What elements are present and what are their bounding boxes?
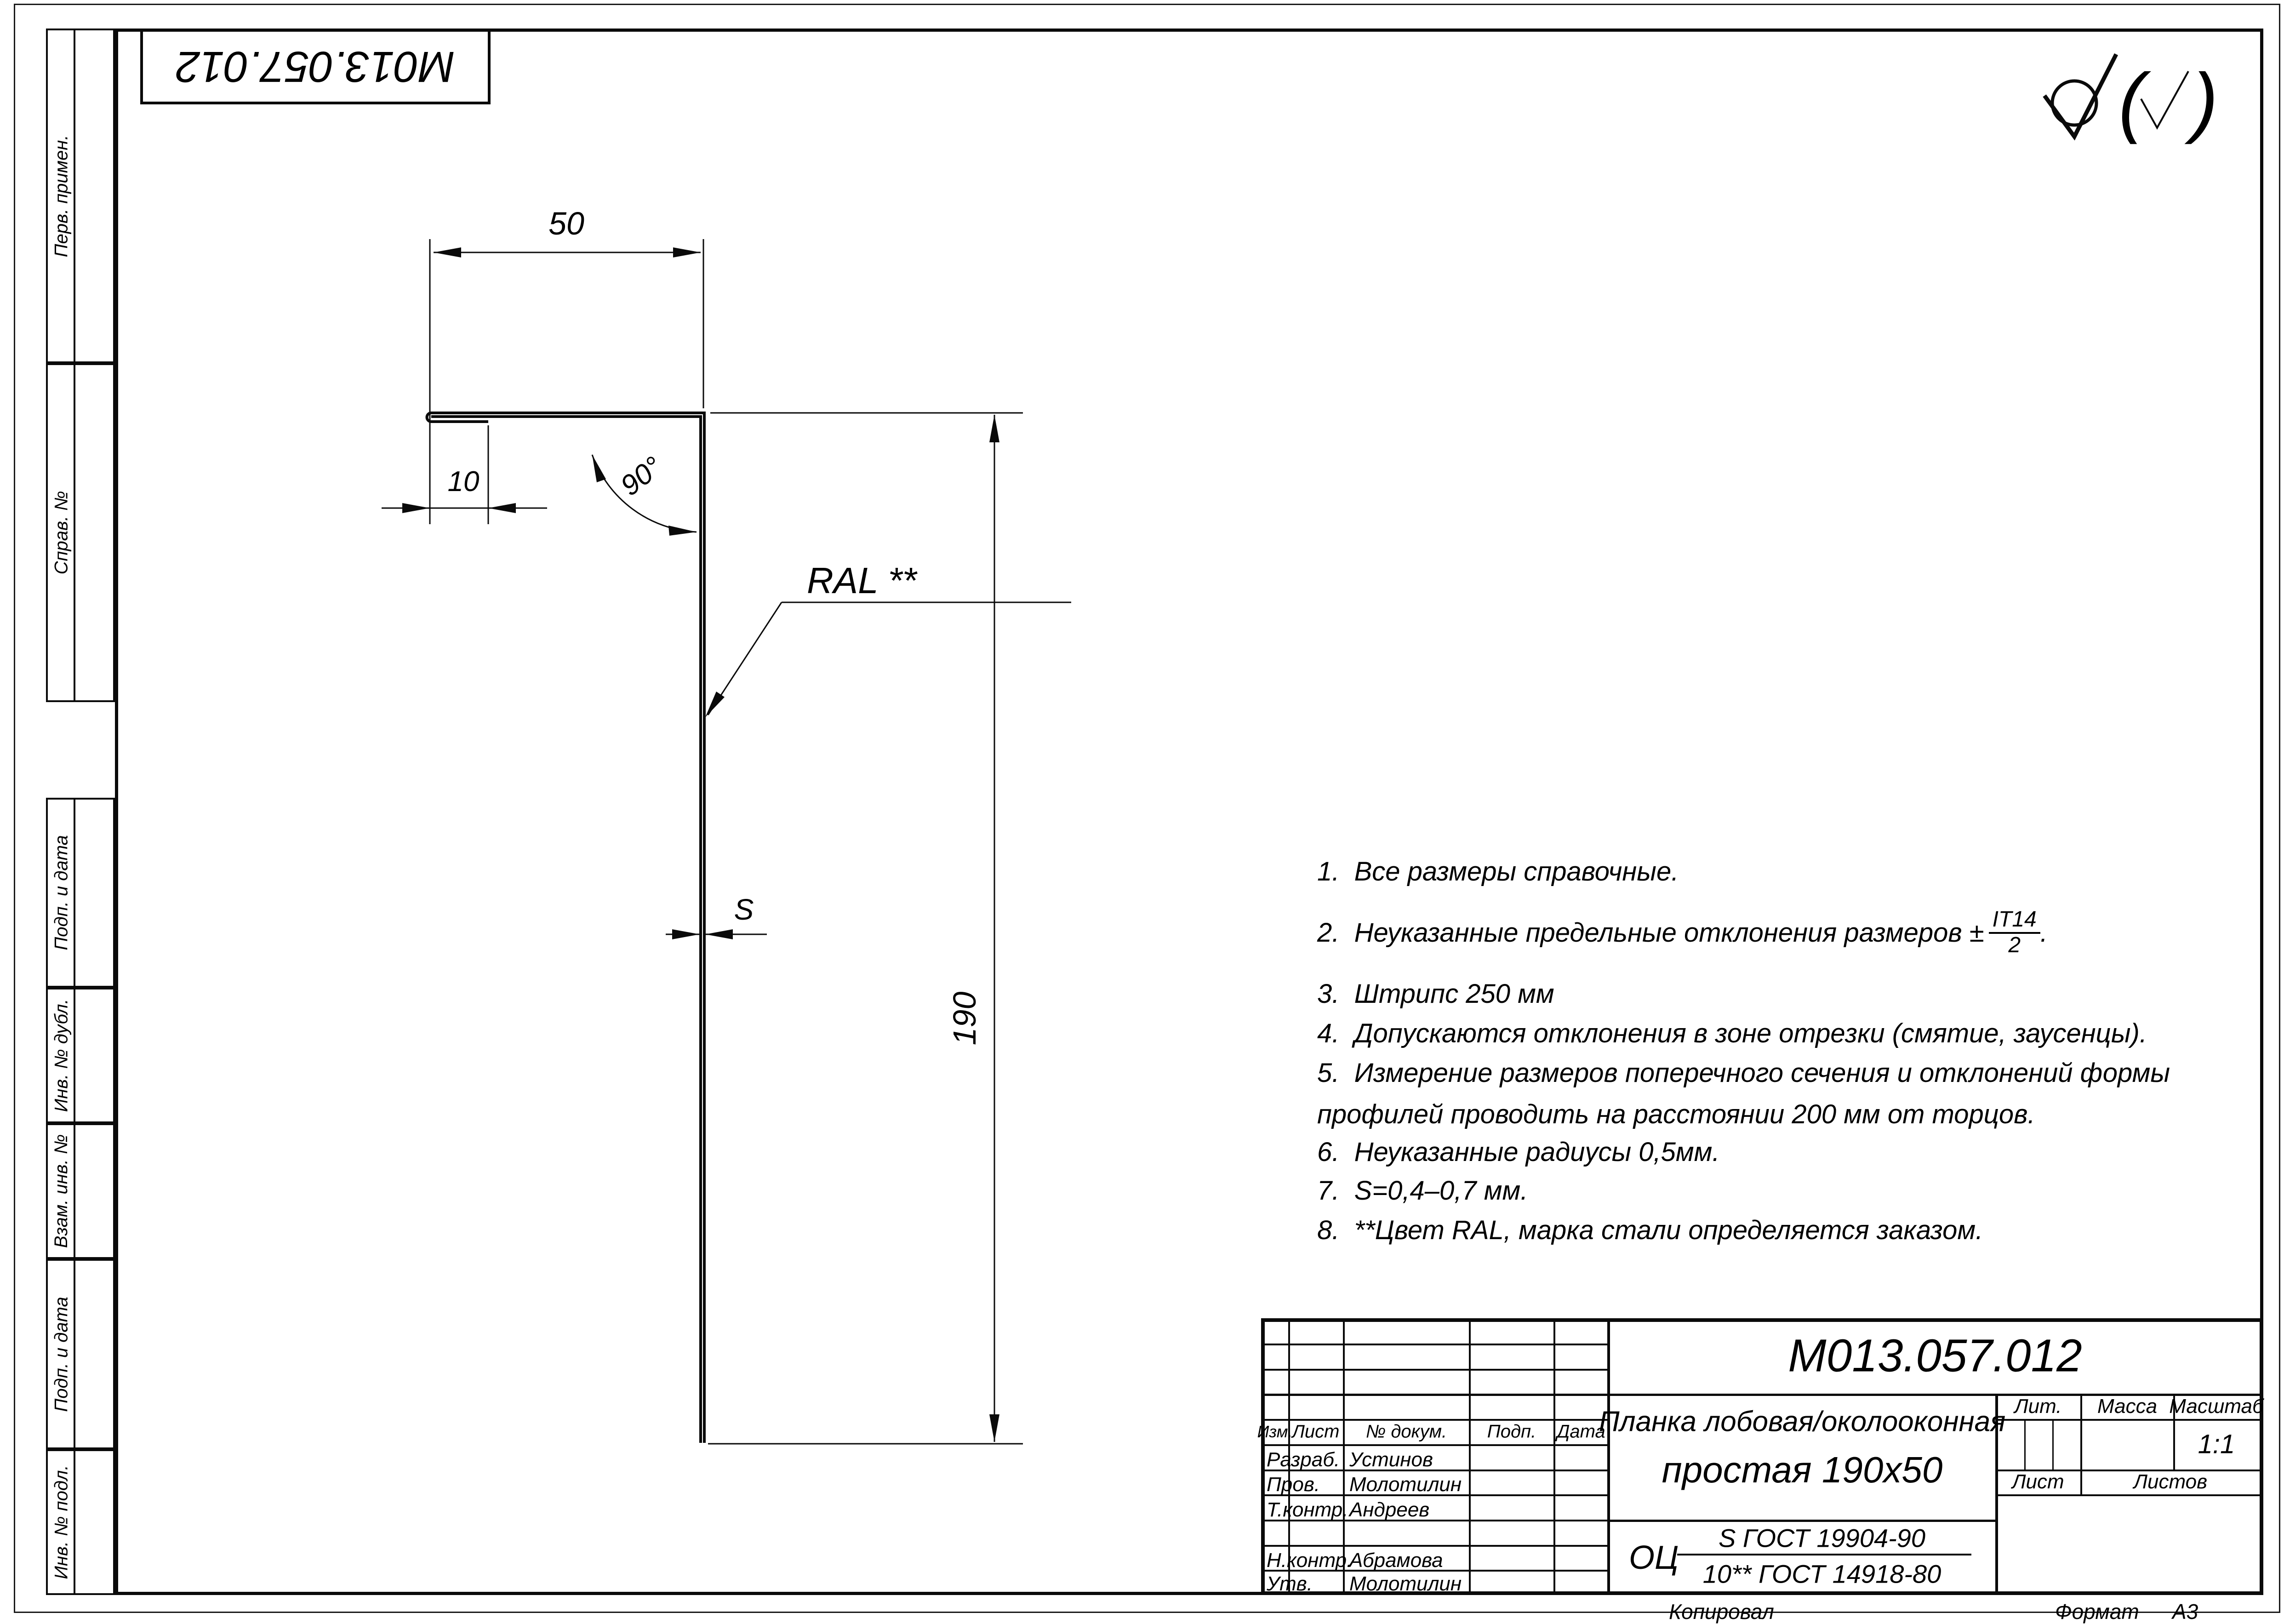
material-prefix: ОЦ xyxy=(1629,1539,1679,1577)
list-label: Лист xyxy=(2012,1470,2064,1493)
note-2: 2. Неуказанные предельные отклонения раз… xyxy=(1317,908,2048,957)
row-name: Абрамова xyxy=(1349,1549,1443,1572)
header-podp: Подп. xyxy=(1487,1422,1536,1442)
row-name: Устинов xyxy=(1349,1448,1433,1471)
extension-lines xyxy=(430,239,1023,1444)
listov-label: Листов xyxy=(2134,1470,2207,1493)
header-izm: Изм. xyxy=(1257,1422,1293,1441)
scale-label: Масштаб xyxy=(2169,1395,2264,1418)
dim-10-text: 10 xyxy=(448,466,480,497)
material-numerator: S ГОСТ 19904-90 xyxy=(1719,1523,1925,1553)
header-data: Дата xyxy=(1557,1422,1605,1442)
dim-angle-text: 90° xyxy=(615,451,668,502)
format-value: А3 xyxy=(2172,1599,2198,1624)
format-label: Формат xyxy=(2055,1599,2139,1624)
row-name: Молотилин xyxy=(1349,1573,1462,1595)
note-7: 7. S=0,4–0,7 мм. xyxy=(1317,1175,1528,1206)
dim-50-text: 50 xyxy=(548,206,584,241)
material-denominator: 10** ГОСТ 14918-80 xyxy=(1703,1559,1941,1589)
row-name: Молотилин xyxy=(1349,1473,1462,1496)
header-docnum: № докум. xyxy=(1366,1422,1447,1442)
title-block: М013.057.012 Планка лобовая/околооконная… xyxy=(1261,1318,2263,1595)
note-6: 6. Неуказанные радиусы 0,5мм. xyxy=(1317,1137,1720,1167)
lit-label: Лит. xyxy=(2014,1395,2061,1418)
small-check-icon xyxy=(2141,71,2188,128)
copied-label: Копировал xyxy=(1669,1599,1774,1624)
designation-text: М013.057.012 xyxy=(1788,1330,2082,1383)
note-5-line1: 5. Измерение размеров поперечного сечени… xyxy=(1317,1058,2170,1088)
part-name-line2: простая 190х50 xyxy=(1662,1449,1943,1491)
header-list: Лист xyxy=(1292,1422,1340,1442)
paren-close-glyph: ) xyxy=(2184,57,2218,145)
note-8: 8. **Цвет RAL, марка стали определяется … xyxy=(1317,1215,1983,1246)
note-1: 1. Все размеры справочные. xyxy=(1317,856,1679,887)
part-name-line1: Планка лобовая/околооконная xyxy=(1599,1406,2006,1438)
ral-label-text: RAL ** xyxy=(807,560,918,601)
dimension-lines xyxy=(382,252,1071,1442)
dim-190-text: 190 xyxy=(947,992,982,1046)
row-label: Пров. xyxy=(1267,1473,1320,1496)
row-label: Н.контр. xyxy=(1267,1549,1352,1572)
row-label: Т.контр. xyxy=(1267,1498,1348,1521)
scale-value: 1:1 xyxy=(2198,1429,2235,1460)
row-label: Утв. xyxy=(1267,1573,1313,1595)
row-name: Андреев xyxy=(1349,1498,1429,1521)
profile-outline xyxy=(427,413,705,1443)
roughness-parenthetical-symbol: ( ) xyxy=(2118,57,2218,145)
dim-s-text: S xyxy=(734,893,754,926)
material-fraction-bar xyxy=(1677,1554,1971,1555)
note-3: 3. Штрипс 250 мм xyxy=(1317,978,1554,1009)
row-label: Разраб. xyxy=(1267,1448,1340,1471)
tolerance-fraction: IT14 2 xyxy=(1989,908,2040,957)
mass-label: Масса xyxy=(2097,1395,2157,1418)
note-4: 4. Допускаются отклонения в зоне отрезки… xyxy=(1317,1018,2147,1049)
note-5-line2: профилей проводить на расстоянии 200 мм … xyxy=(1317,1099,2035,1130)
surface-roughness-symbol xyxy=(2044,54,2116,137)
paren-open-glyph: ( xyxy=(2118,57,2151,145)
